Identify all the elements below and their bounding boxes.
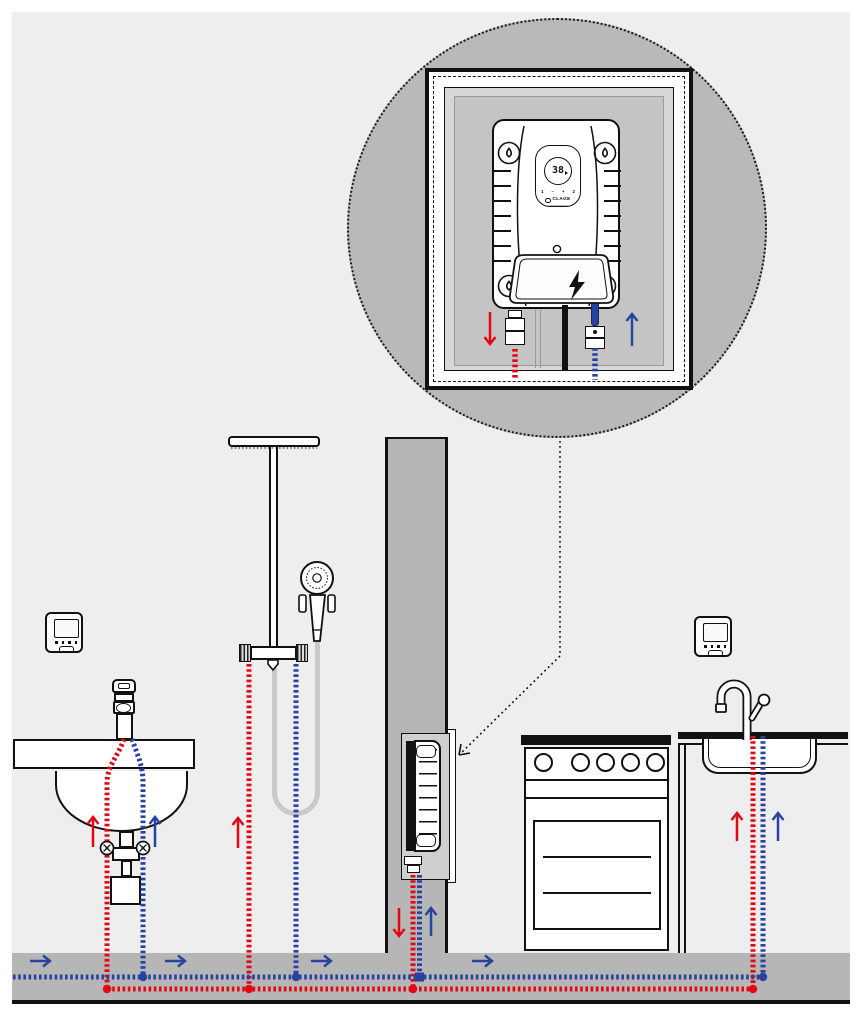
stove-knob [621,753,640,772]
remote-screen [54,619,79,638]
button-preset-2: 2 [572,189,575,195]
display-cursor-icon [565,171,568,175]
stove-knob [596,753,615,772]
installation-diagram: 38 1 – + 2 CLAGE [0,0,862,1017]
stove-knob [571,753,590,772]
floor-band [12,953,850,1000]
masonry-column [385,437,448,1000]
kitchen-countertop [678,732,848,739]
hot-outlet-nut [505,318,525,331]
stove-panel-line [524,779,669,781]
cabinet-side-line [678,744,680,953]
floor-baseline [12,1000,850,1004]
side-heater-tab-top [416,745,436,758]
trap-coupling [112,847,140,861]
stove-cooktop-edge [521,735,671,745]
side-heater-ribs [419,749,437,843]
brand-subline [548,205,568,206]
remote-badge [59,646,74,653]
cold-valve-pin [593,330,597,334]
hot-outlet-fitting [508,310,522,318]
oven-rack-line [543,856,651,858]
shower-riser-pipe [269,447,278,647]
mixer-fitting-cold [296,644,308,662]
trap-bottle [110,876,141,905]
brand-name: CLAGE [552,198,570,203]
remote-control-washbasin [45,612,83,653]
button-plus: + [562,189,565,195]
oven-rack-line [543,892,651,894]
trap-neck [121,860,132,877]
side-heater-fitting [404,856,422,865]
rain-shower-head [228,436,320,447]
remote-badge [708,650,723,657]
stove-knob [646,753,665,772]
heater-vent-ribs-right [604,170,621,270]
remote-buttons [704,645,726,648]
oven-door-window [533,820,661,930]
remote-buttons [55,641,77,644]
basin-faucet-base [116,713,133,740]
basin-faucet-lever-notch [118,683,130,689]
stove-knob [534,753,553,772]
heater-vent-ribs-left [494,170,511,270]
heater-temperature-display: 38 [544,157,572,185]
side-heater-union [407,865,420,873]
trap-tailpiece [119,831,134,848]
stove-drawer-line [524,797,669,799]
power-cable [562,305,568,370]
side-heater-backplate [406,741,414,851]
shower-mixer-bar [250,646,297,660]
brand-logo-icon [545,198,551,204]
cold-inlet-union [585,338,605,349]
basin-faucet-spout [116,703,131,713]
washbasin-slab [13,739,195,769]
temperature-value: 38 [552,166,564,176]
cold-inlet-valve-handle [591,301,599,326]
side-heater-tab-bottom [416,834,436,847]
hot-outlet-union [505,331,525,345]
sensor-conduit [535,310,541,368]
cabinet-side-line [684,744,686,953]
brand-logo: CLAGE [537,197,579,204]
heater-buttons: 1 – + 2 [541,189,575,195]
button-preset-1: 1 [541,189,544,195]
remote-screen [703,623,728,642]
button-minus: – [551,189,554,195]
kitchen-sink-bowl-inner [708,739,811,768]
remote-control-kitchen [694,616,732,657]
mixer-fitting-hot [239,644,251,662]
